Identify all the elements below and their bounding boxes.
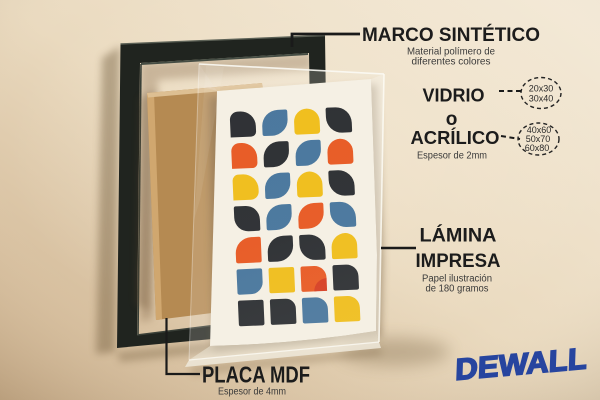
svg-text:Espesor de 4mm: Espesor de 4mm bbox=[218, 387, 286, 398]
svg-text:30x40: 30x40 bbox=[529, 94, 554, 104]
svg-text:ACRÍLICO: ACRÍLICO bbox=[411, 127, 500, 148]
svg-text:MARCO SINTÉTICO: MARCO SINTÉTICO bbox=[362, 24, 540, 46]
svg-text:diferentes colores: diferentes colores bbox=[412, 56, 491, 68]
svg-text:VIDRIO: VIDRIO bbox=[423, 85, 485, 106]
svg-text:IMPRESA: IMPRESA bbox=[416, 251, 501, 272]
svg-text:LÁMINA: LÁMINA bbox=[420, 225, 497, 247]
svg-text:Espesor de 2mm: Espesor de 2mm bbox=[417, 151, 487, 162]
svg-text:60x80: 60x80 bbox=[525, 143, 550, 153]
svg-text:20x30: 20x30 bbox=[529, 84, 554, 94]
svg-text:de 180 gramos: de 180 gramos bbox=[426, 284, 489, 295]
svg-text:PLACA MDF: PLACA MDF bbox=[202, 362, 310, 388]
